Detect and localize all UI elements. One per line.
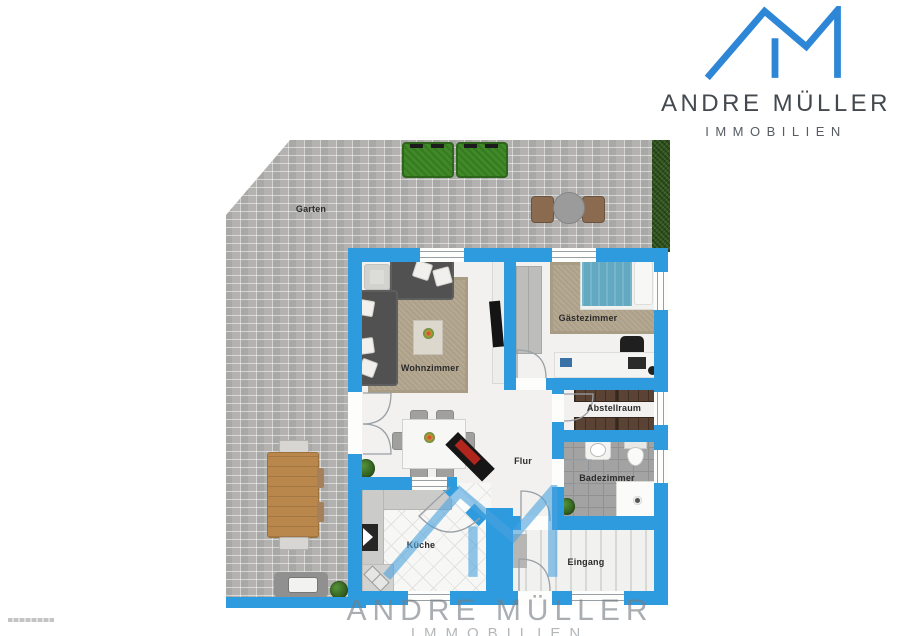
wall <box>348 248 362 394</box>
wall <box>348 248 668 262</box>
garden-stool <box>317 468 324 488</box>
window <box>408 591 450 605</box>
logo-am-icon <box>702 6 848 81</box>
fine-print <box>8 618 54 622</box>
door-terrace <box>348 392 362 454</box>
window <box>654 392 668 425</box>
grill-lid <box>288 577 318 593</box>
bed-blanket <box>582 258 632 306</box>
window <box>420 248 464 262</box>
room-label-badezimmer: Badezimmer <box>579 473 635 483</box>
wall <box>552 422 564 459</box>
room-label-eingang: Eingang <box>568 557 605 567</box>
patio-table <box>553 192 585 224</box>
garden-table <box>267 452 319 538</box>
wall <box>504 262 516 380</box>
door-hallway <box>521 516 552 530</box>
room-label-wohnzimmer: Wohnzimmer <box>401 363 459 373</box>
garden-wall <box>226 597 366 608</box>
bush-trim <box>464 144 477 148</box>
floorplan-page: ANDRE MÜLLER IMMOBILIEN <box>0 0 900 636</box>
window <box>654 272 668 310</box>
window <box>572 591 624 605</box>
front-door <box>518 591 552 605</box>
laptop <box>628 357 646 369</box>
bush-trim <box>485 144 498 148</box>
shower-drain-icon <box>633 496 642 505</box>
wall <box>546 378 668 390</box>
garden-stool <box>317 502 324 522</box>
brand-division: IMMOBILIEN <box>640 124 900 139</box>
wall <box>513 516 521 530</box>
door-guestroom <box>516 378 546 390</box>
wall <box>564 430 654 442</box>
door-bathroom <box>552 459 564 487</box>
brand-name: ANDRE MÜLLER <box>640 90 900 118</box>
patio-chair <box>582 196 605 223</box>
sink-basin <box>590 443 606 457</box>
room-label-kueche: Küche <box>407 540 436 550</box>
wall <box>486 508 513 605</box>
fruit-bowl <box>424 432 435 443</box>
window <box>552 248 596 262</box>
kitchen-hatch <box>412 477 447 490</box>
room-label-garten: Garten <box>296 204 326 214</box>
wall <box>552 516 654 530</box>
doormat <box>512 534 527 568</box>
side-box <box>364 264 390 290</box>
window <box>654 450 668 483</box>
watermark-division: IMMOBILIEN <box>340 625 660 636</box>
room-label-abstellraum: Abstellraum <box>587 403 641 413</box>
room-label-gaestezimmer: Gästezimmer <box>559 313 618 323</box>
desk-item <box>560 358 572 367</box>
hedge <box>652 140 670 252</box>
patio-chair <box>531 196 554 223</box>
wall <box>348 477 412 490</box>
door-storage <box>552 394 564 422</box>
wardrobe <box>516 266 542 354</box>
fruit-bowl <box>423 328 434 339</box>
wall <box>552 487 564 518</box>
bed-pillow <box>634 261 653 305</box>
bush-trim <box>431 144 444 148</box>
wall <box>504 378 516 390</box>
garden-bench <box>279 537 309 550</box>
bush-trim <box>410 144 423 148</box>
company-logo <box>702 6 848 83</box>
room-label-flur: Flur <box>514 456 532 466</box>
